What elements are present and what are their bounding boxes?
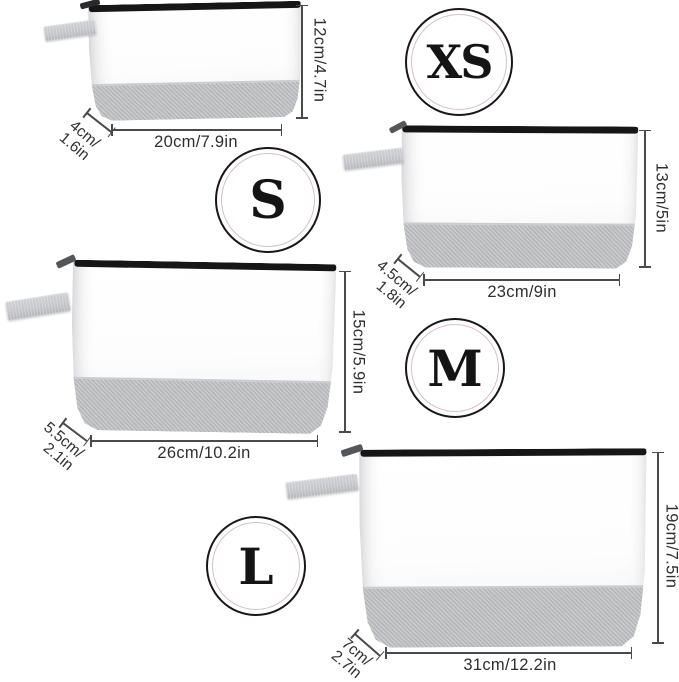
badge-inner-ring: M [411,324,499,412]
badge-letter: S [249,170,287,231]
height-dimension-line [301,5,303,118]
height-dimension-label: 13cm/5in [652,163,671,233]
fabric-bottom-band [400,223,638,269]
zipper-strip [74,260,336,272]
size-badge-xs: XS [405,8,513,116]
depth-dimension-label: 5.5cm/ 2.1in [30,420,86,475]
fabric-bottom-band [88,80,303,121]
width-dimension-line [423,279,620,281]
badge-letter: M [427,339,482,398]
badge-inner-ring: XS [411,14,507,110]
width-dimension-line [111,129,282,131]
height-dimension-label: 15cm/5.9in [349,310,368,395]
height-dimension-label: 19cm/7.5in [662,504,679,589]
width-dimension-label: 31cm/12.2in [463,656,556,675]
fabric-bottom-band [69,377,335,435]
width-dimension-label: 20cm/7.9in [154,133,238,152]
height-dimension-line [644,130,646,267]
cosmetic-bag-photo-l [357,448,647,648]
fabric-bottom-band [358,585,647,648]
width-dimension-line [385,652,632,654]
side-handle-tab [43,19,97,41]
height-dimension-line [344,271,346,432]
badge-inner-ring: L [212,522,300,610]
size-badge-s: S [215,147,321,253]
size-badge-l: L [206,516,306,616]
width-dimension-label: 23cm/9in [487,283,556,302]
zipper-strip [89,1,301,12]
badge-inner-ring: S [221,153,315,247]
cosmetic-bag-photo-s [400,125,639,268]
width-dimension-line [90,440,318,442]
side-handle-tab [342,147,404,170]
badge-letter: XS [427,35,492,89]
size-badge-m: M [405,318,505,418]
badge-letter: L [238,537,273,596]
side-handle-tab [285,474,359,500]
cosmetic-bag-photo-xs [87,1,303,121]
height-dimension-line [657,452,659,643]
depth-dimension-label: 4.5cm/ 1.8in [363,258,419,313]
cosmetic-bag-photo-m [69,260,337,435]
width-dimension-label: 26cm/10.2in [157,444,250,463]
zipper-strip [360,448,646,456]
height-dimension-label: 12cm/4.7in [310,18,329,103]
depth-dimension-label: 4cm/ 1.6in [56,118,102,164]
cosmetic-bag-size-diagram: 12cm/4.7in 20cm/7.9in 4cm/ 1.6in XS 13cm… [0,0,679,682]
side-handle-tab [5,292,71,321]
zipper-strip [403,125,639,133]
